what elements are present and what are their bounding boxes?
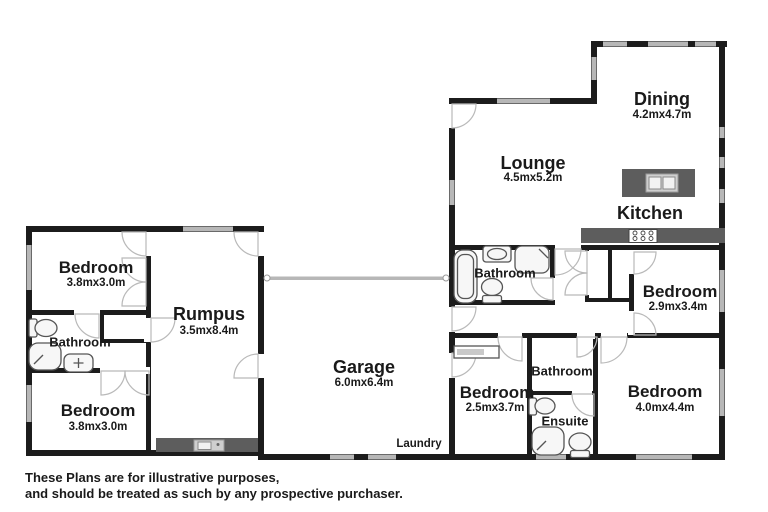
garage-door xyxy=(264,275,449,281)
door-gap xyxy=(577,332,595,339)
island-sink-bowl xyxy=(663,177,675,189)
garage-door-end xyxy=(443,275,449,281)
island-sink-bowl xyxy=(649,177,661,189)
garage-door-panel xyxy=(266,277,447,281)
window xyxy=(27,245,32,290)
window xyxy=(695,42,716,47)
door-arc xyxy=(151,318,175,342)
label-bathroom-left: Bathroom xyxy=(49,335,110,350)
shower-icon xyxy=(532,427,564,455)
window xyxy=(330,455,354,460)
door-arc xyxy=(122,232,146,256)
door-arc xyxy=(565,273,587,295)
faucet-dot xyxy=(217,443,220,446)
window xyxy=(592,57,597,80)
door-gap xyxy=(498,332,522,339)
window xyxy=(603,42,627,47)
door-gap xyxy=(601,332,627,339)
dims-bedroom-right: 2.9mx3.4m xyxy=(649,301,708,313)
kitchen-fixtures xyxy=(194,174,678,451)
door-gap xyxy=(144,318,153,342)
door-arc xyxy=(234,354,258,378)
pedestal-sink-icon xyxy=(569,433,591,451)
wall-segment xyxy=(258,226,264,460)
door-gap xyxy=(555,244,581,251)
door-gap xyxy=(572,390,592,396)
label-dining: Dining xyxy=(634,89,690,109)
label-ensuite: Ensuite xyxy=(542,414,589,429)
window xyxy=(450,180,455,205)
window xyxy=(648,42,688,47)
window xyxy=(497,99,550,104)
door-arc xyxy=(634,313,656,335)
door-arc xyxy=(125,371,149,395)
pedestal-base xyxy=(571,451,590,458)
dims-rumpus: 3.5mx8.4m xyxy=(180,325,239,337)
garage-door-end xyxy=(264,275,270,281)
disclaimer-line-2: and should be treated as such by any pro… xyxy=(25,486,403,501)
dims-bedroom-top-left: 3.8mx3.0m xyxy=(67,277,126,289)
closet-slider xyxy=(457,349,484,355)
label-laundry: Laundry xyxy=(396,438,442,450)
door-arc xyxy=(601,337,627,363)
disclaimer-line-1: These Plans are for illustrative purpose… xyxy=(25,470,279,485)
dims-dining: 4.2mx4.7m xyxy=(633,109,692,121)
toilet-icon xyxy=(535,398,555,414)
window xyxy=(636,455,692,460)
window xyxy=(720,270,725,312)
label-bedroom-mid: Bedroom xyxy=(460,383,535,402)
door-arc xyxy=(565,251,587,273)
window xyxy=(720,157,725,168)
toilet-tank-icon xyxy=(483,296,502,304)
dims-lounge: 4.5mx5.2m xyxy=(504,172,563,184)
door-gap xyxy=(144,232,153,256)
window xyxy=(720,127,725,138)
window xyxy=(368,455,396,460)
door-gap xyxy=(74,309,100,316)
label-bathroom-main: Bathroom xyxy=(474,266,535,281)
label-garage: Garage xyxy=(333,357,395,377)
label-bedroom-right: Bedroom xyxy=(643,282,718,301)
dims-bedroom-bottom-right: 4.0mx4.4m xyxy=(636,402,695,414)
label-bedroom-bottom-left: Bedroom xyxy=(61,401,136,420)
toilet-icon xyxy=(482,279,503,296)
rumpus-sink-bowl xyxy=(198,442,211,450)
dims-bedroom-mid: 2.5mx3.7m xyxy=(466,402,525,414)
dims-bedroom-bottom-left: 3.8mx3.0m xyxy=(69,421,128,433)
label-bedroom-top-left: Bedroom xyxy=(59,258,134,277)
window xyxy=(720,369,725,416)
wall-segment xyxy=(608,249,612,301)
label-bathroom-bottom: Bathroom xyxy=(531,364,592,379)
wall-segment xyxy=(585,298,634,302)
door-arc xyxy=(634,252,656,274)
label-bedroom-bottom-right: Bedroom xyxy=(628,382,703,401)
window xyxy=(27,385,32,422)
label-rumpus: Rumpus xyxy=(173,304,245,324)
window xyxy=(183,227,233,232)
dims-garage: 6.0mx6.4m xyxy=(335,377,394,389)
door-arc xyxy=(498,337,522,361)
label-lounge: Lounge xyxy=(501,153,566,173)
floorplan-page: Dining 4.2mx4.7m Lounge 4.5mx5.2m Kitche… xyxy=(0,0,768,512)
label-kitchen: Kitchen xyxy=(617,203,683,223)
door-arc xyxy=(122,282,146,306)
window xyxy=(720,189,725,203)
door-arc xyxy=(234,232,258,256)
door-arc xyxy=(101,371,125,395)
disclaimer: These Plans are for illustrative purpose… xyxy=(25,470,403,501)
floorplan-canvas: Dining 4.2mx4.7m Lounge 4.5mx5.2m Kitche… xyxy=(0,0,768,512)
